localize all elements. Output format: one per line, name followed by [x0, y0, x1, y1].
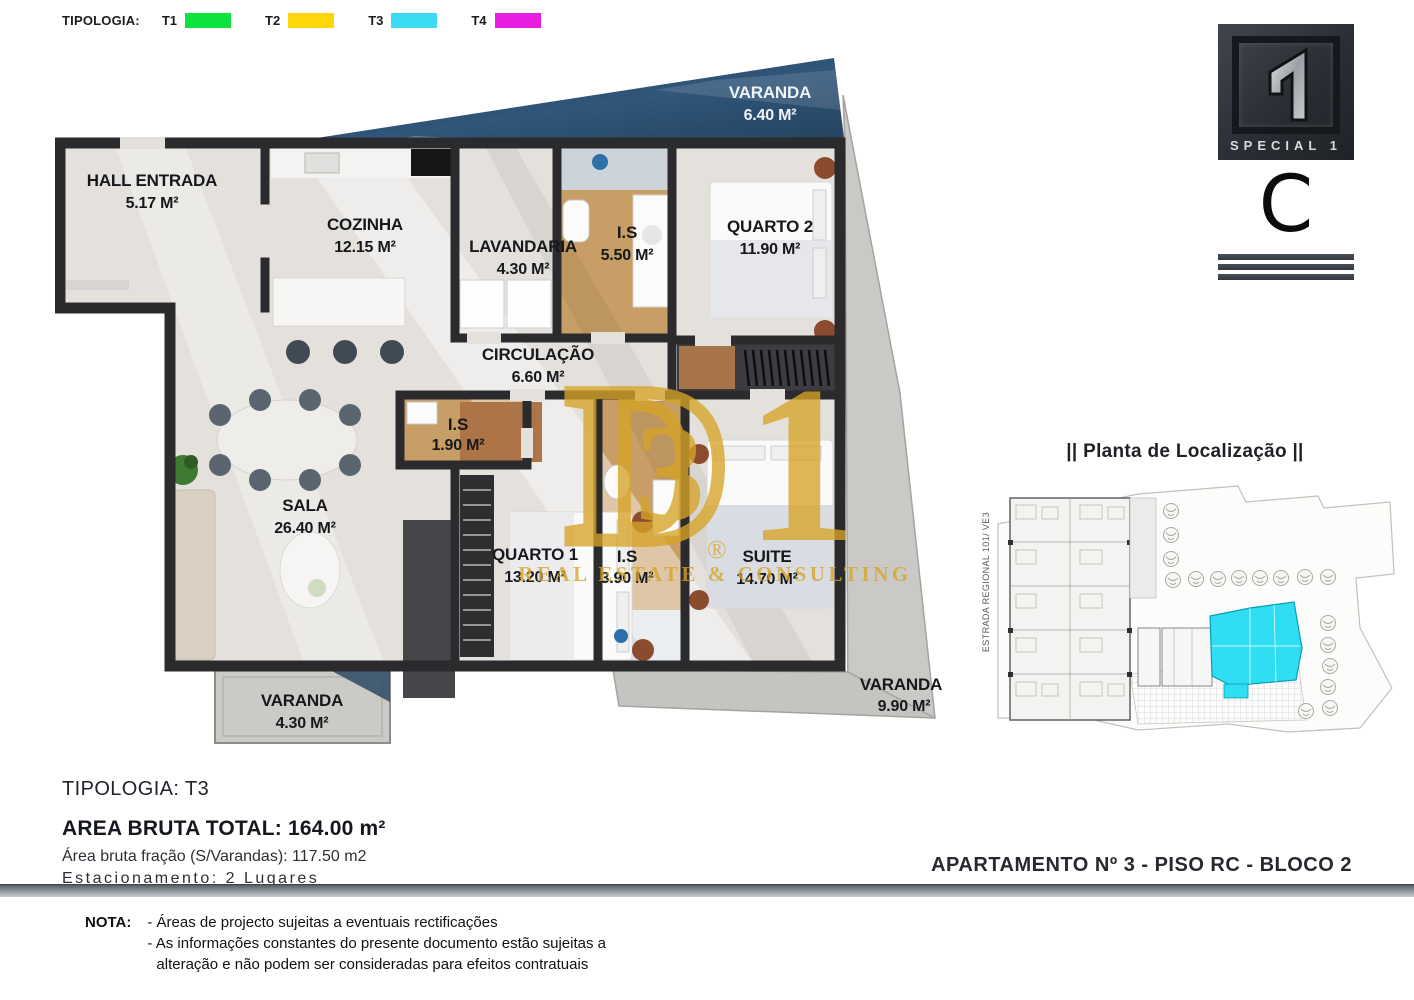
svg-text:VARANDA: VARANDA: [729, 83, 811, 102]
legend-item-t3: T3: [368, 13, 437, 28]
legend-swatch-t3: [391, 13, 437, 28]
legend-item-t2: T2: [265, 13, 334, 28]
svg-text:HALL ENTRADA: HALL ENTRADA: [87, 171, 217, 190]
legend-label-t2: T2: [265, 13, 280, 28]
nota-line-1: - Áreas de projecto sujeitas a eventuais…: [147, 912, 606, 933]
block-letter: C: [1218, 162, 1354, 248]
apartment-identifier: APARTAMENTO Nº 3 - PISO RC - BLOCO 2: [931, 854, 1352, 877]
svg-text:SALA: SALA: [282, 496, 327, 515]
logo-one-icon: [1218, 24, 1354, 134]
svg-text:6.40 M²: 6.40 M²: [744, 107, 797, 124]
legend-label-t4: T4: [471, 13, 486, 28]
logo-bars-icon: [1218, 254, 1354, 280]
nota-line-2: - As informações constantes do presente …: [147, 933, 606, 954]
svg-text:VARANDA: VARANDA: [261, 691, 343, 710]
legend-label-t1: T1: [162, 13, 177, 28]
location-site-plan: [988, 478, 1400, 746]
location-plan-title: || Planta de Localização ||: [1040, 441, 1330, 463]
svg-text:3: 3: [635, 396, 705, 551]
svg-text:9.90 M²: 9.90 M²: [878, 698, 931, 715]
svg-text:4.30 M²: 4.30 M²: [497, 261, 550, 278]
adjacent-units: [1138, 628, 1212, 686]
brand-name: SPECIAL 1: [1218, 138, 1354, 153]
summary-area-fracao: Área bruta fração (S/Varandas): 117.50 m…: [62, 848, 386, 866]
nota-lines: - Áreas de projecto sujeitas a eventuais…: [147, 912, 606, 975]
brand-logo-square: SPECIAL 1: [1218, 24, 1354, 160]
svg-text:5.50 M²: 5.50 M²: [601, 247, 654, 264]
glass-canopy: [265, 58, 845, 146]
svg-text:REAL ESTATE & CONSULTING: REAL ESTATE & CONSULTING: [518, 562, 911, 586]
floor-plan-sheet: TIPOLOGIA: T1 T2 T3 T4: [0, 0, 1414, 1000]
divider-bar: [0, 884, 1414, 897]
svg-text:1.90 M²: 1.90 M²: [432, 437, 485, 454]
svg-text:6.60 M²: 6.60 M²: [512, 369, 565, 386]
legend-title: TIPOLOGIA:: [62, 13, 140, 28]
svg-text:VARANDA: VARANDA: [860, 675, 942, 694]
nota-line-3: alteração e não podem ser consideradas p…: [147, 954, 606, 975]
svg-text:COZINHA: COZINHA: [327, 215, 403, 234]
legend-item-t1: T1: [162, 13, 231, 28]
svg-text:I.S: I.S: [617, 223, 637, 242]
legend-swatch-t2: [288, 13, 334, 28]
summary-block: TIPOLOGIA: T3 AREA BRUTA TOTAL: 164.00 m…: [62, 778, 386, 888]
nota-label: NOTA:: [85, 912, 131, 975]
svg-text:12.15 M²: 12.15 M²: [334, 239, 396, 256]
legend-swatch-t1: [185, 13, 231, 28]
svg-text:QUARTO 2: QUARTO 2: [727, 217, 813, 236]
svg-text:11.90 M²: 11.90 M²: [740, 241, 801, 258]
typology-legend: TIPOLOGIA: T1 T2 T3 T4: [62, 13, 575, 28]
apartment-floor-plan: HALL ENTRADA 5.17 M² COZINHA 12.15 M² LA…: [55, 50, 965, 760]
svg-text:LAVANDARIA: LAVANDARIA: [469, 237, 577, 256]
watermark-logo: D 3 1 ® REAL ESTATE & CONSULTING: [518, 339, 911, 589]
svg-text:26.40 M²: 26.40 M²: [274, 520, 336, 537]
svg-text:4.30 M²: 4.30 M²: [276, 715, 329, 732]
legend-label-t3: T3: [368, 13, 383, 28]
svg-text:1: 1: [745, 339, 858, 589]
brand-logo: SPECIAL 1 C: [1218, 24, 1354, 284]
legend-item-t4: T4: [471, 13, 540, 28]
svg-text:I.S: I.S: [448, 415, 468, 434]
hall-bench: [63, 280, 129, 290]
summary-tipologia: TIPOLOGIA: T3: [62, 778, 386, 801]
svg-text:5.17 M²: 5.17 M²: [126, 195, 179, 212]
svg-text:®: ®: [707, 535, 727, 564]
legend-swatch-t4: [495, 13, 541, 28]
nota-block: NOTA: - Áreas de projecto sujeitas a eve…: [85, 912, 606, 975]
summary-area-total: AREA BRUTA TOTAL: 164.00 m²: [62, 817, 386, 841]
